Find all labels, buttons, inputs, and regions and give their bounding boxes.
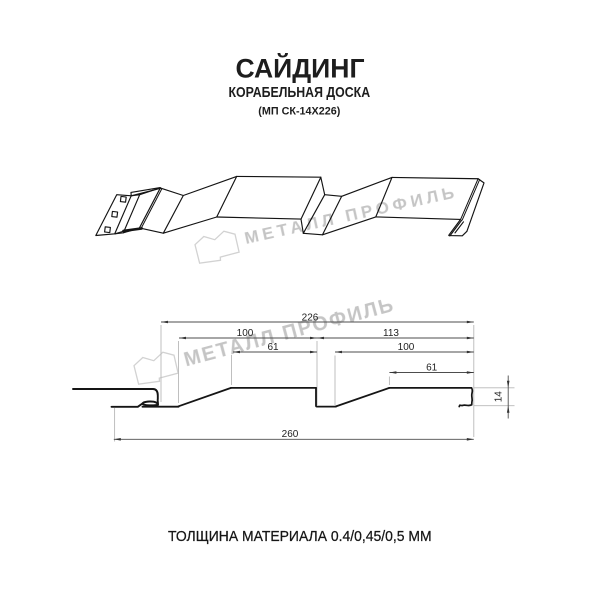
svg-text:КОРАБЕЛЬНАЯ ДОСКА: КОРАБЕЛЬНАЯ ДОСКА: [229, 85, 371, 101]
svg-text:(МП СК-14Х226): (МП СК-14Х226): [258, 105, 340, 117]
svg-text:14: 14: [494, 391, 505, 403]
svg-text:ТОЛЩИНА МАТЕРИАЛА 0.4/0,45/0,5: ТОЛЩИНА МАТЕРИАЛА 0.4/0,45/0,5 ММ: [168, 529, 432, 545]
svg-text:61: 61: [267, 342, 279, 353]
svg-text:САЙДИНГ: САЙДИНГ: [236, 52, 365, 83]
svg-text:100: 100: [398, 342, 415, 353]
svg-text:113: 113: [383, 328, 399, 339]
svg-text:260: 260: [282, 429, 299, 440]
svg-text:61: 61: [426, 362, 438, 373]
svg-text:100: 100: [237, 328, 254, 339]
svg-text:226: 226: [302, 313, 319, 324]
